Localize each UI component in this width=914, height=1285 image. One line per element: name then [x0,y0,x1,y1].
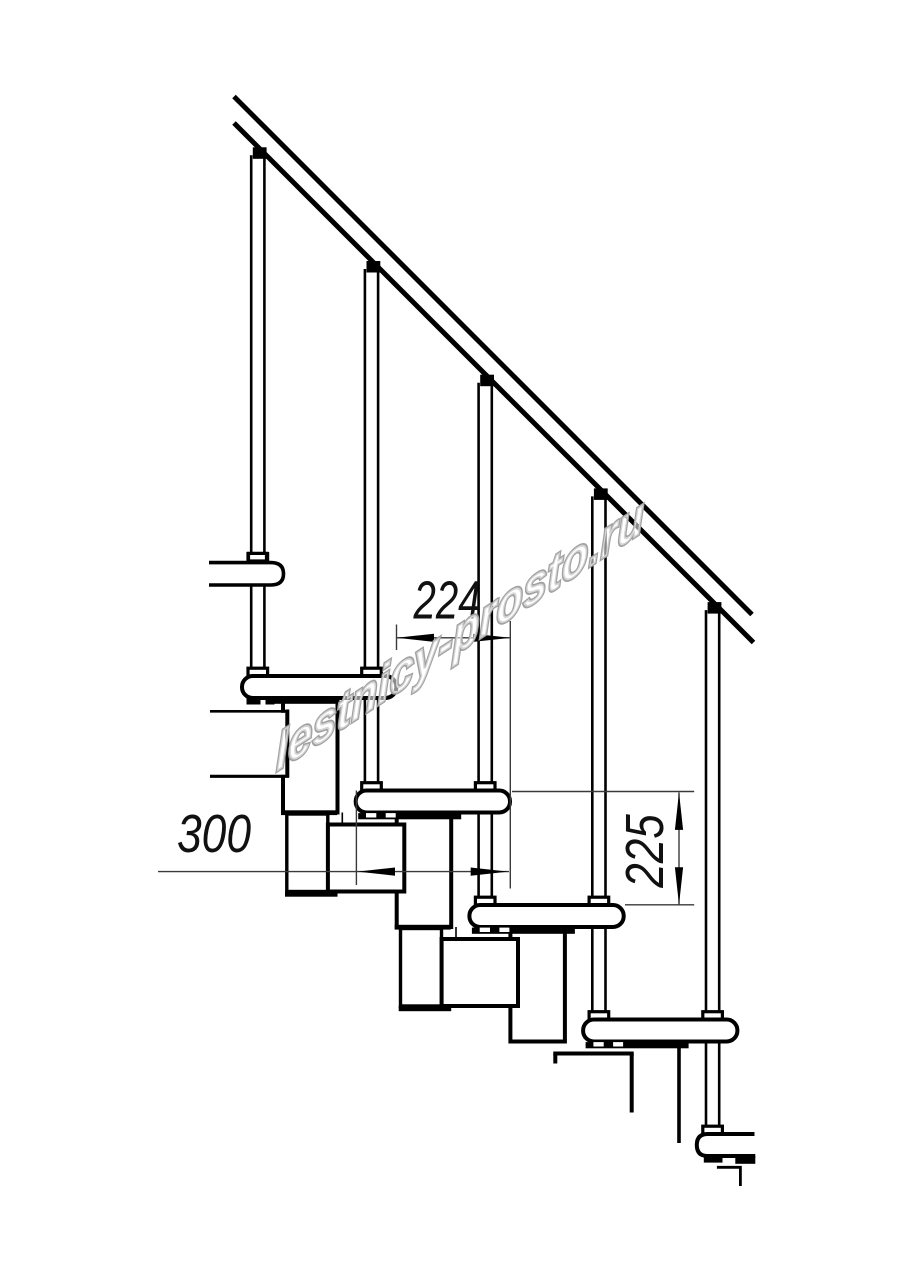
svg-text:225: 225 [615,813,675,888]
svg-text:300: 300 [177,804,251,864]
